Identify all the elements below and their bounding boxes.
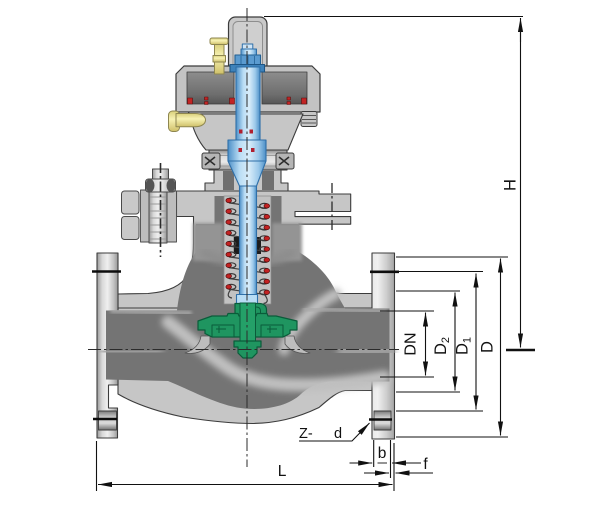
svg-text:L: L — [278, 463, 287, 480]
svg-text:D1: D1 — [454, 337, 474, 355]
svg-text:b: b — [378, 445, 387, 462]
svg-text:f: f — [423, 456, 428, 473]
svg-text:DN: DN — [403, 332, 420, 355]
svg-text:D: D — [479, 341, 497, 353]
svg-text:H: H — [502, 179, 520, 191]
svg-text:D2: D2 — [432, 337, 452, 355]
svg-text:Z-: Z- — [299, 426, 313, 442]
svg-text:d: d — [334, 426, 342, 442]
